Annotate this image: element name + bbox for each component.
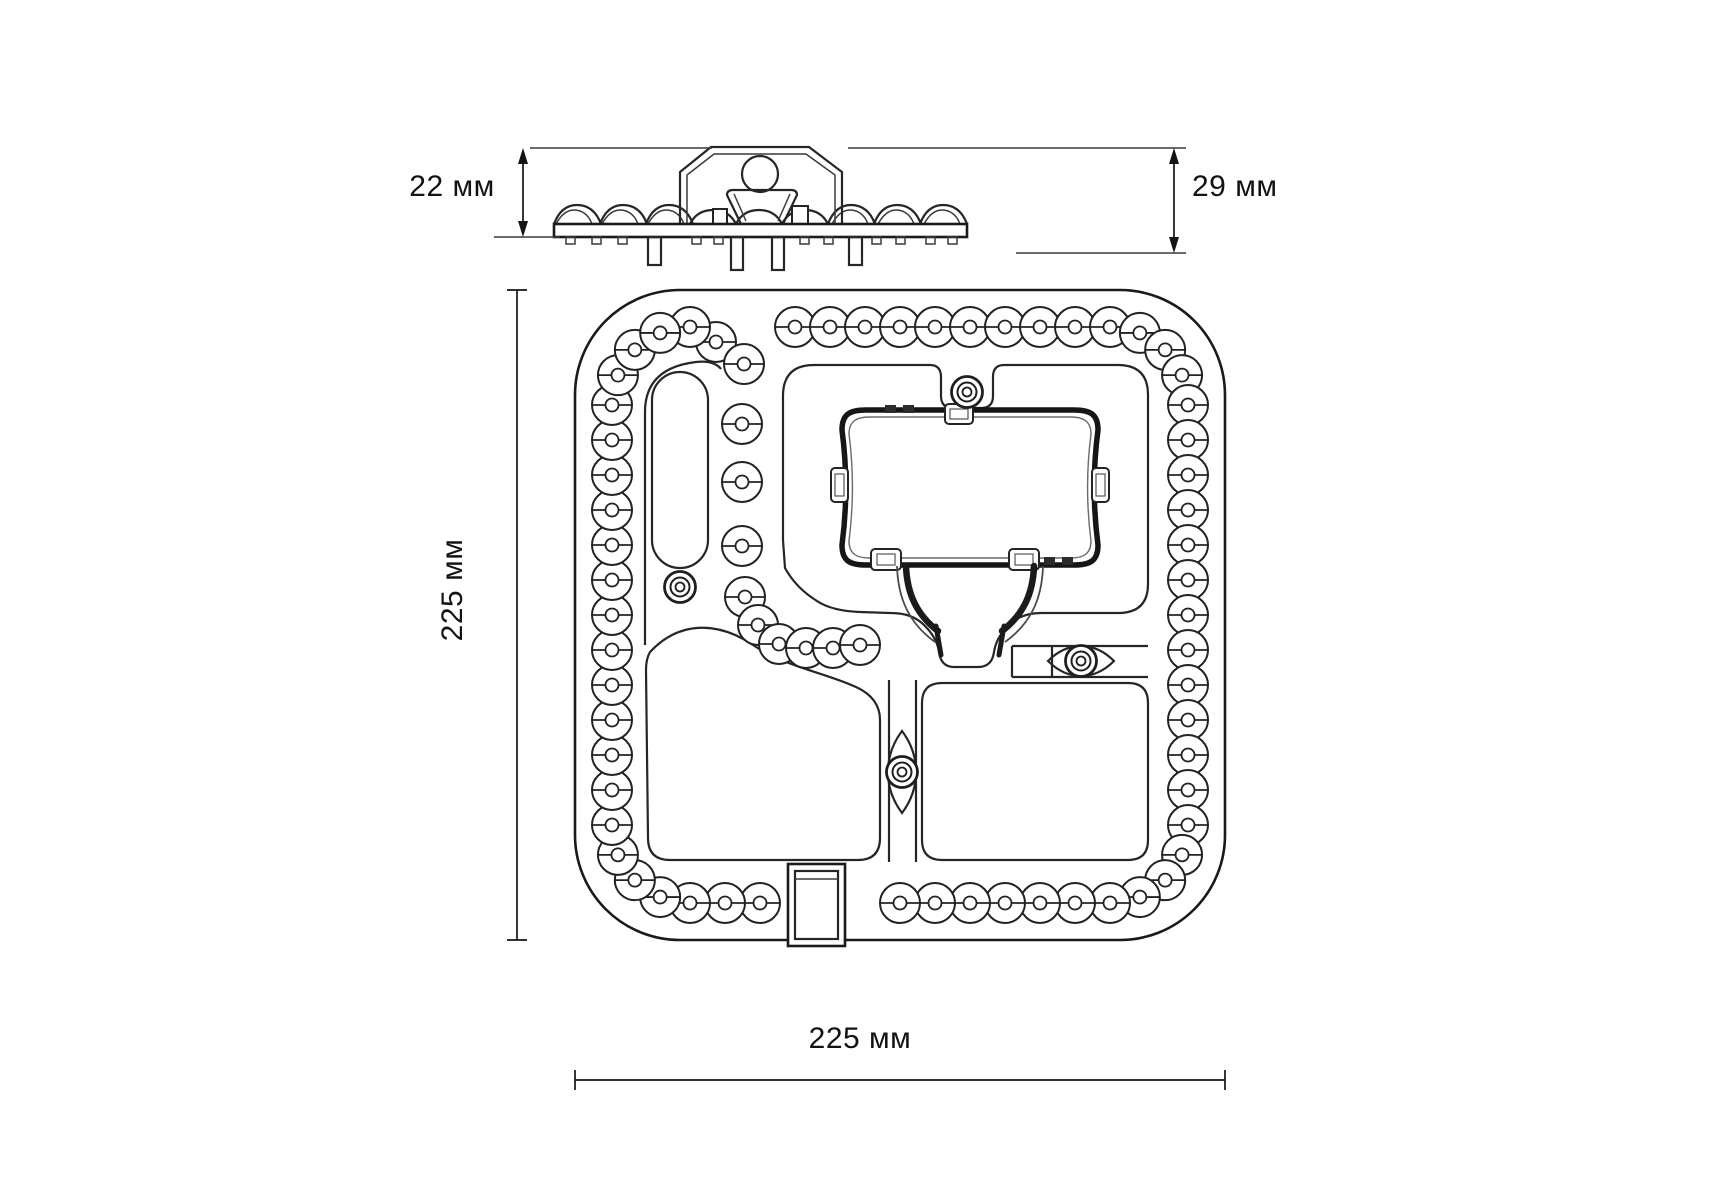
sensor-dome <box>742 156 778 192</box>
module-outline <box>575 290 1225 940</box>
side-pcb-board <box>554 224 967 237</box>
dimension-height-225mm: 225 мм <box>436 290 527 940</box>
screw-post <box>952 377 983 408</box>
label-side-height-left: 22 мм <box>409 170 494 203</box>
bracket-tab-right <box>1092 468 1109 502</box>
dimension-width-225mm: 225 мм <box>575 1022 1225 1090</box>
side-lens-domes <box>554 205 967 224</box>
label-side-height-right: 29 мм <box>1192 170 1277 203</box>
label-plan-width: 225 мм <box>809 1022 912 1055</box>
label-plan-height: 225 мм <box>436 539 469 642</box>
side-view: 22 мм 29 мм <box>409 147 1277 270</box>
led-lens <box>640 313 680 353</box>
plan-view: 225 мм 225 мм <box>436 290 1225 1090</box>
mounting-pins <box>648 237 862 270</box>
v-bracket <box>727 190 797 224</box>
screw-post <box>1066 646 1097 677</box>
connector-socket <box>788 864 845 946</box>
screw-post <box>887 757 918 788</box>
led-lens <box>840 625 880 665</box>
led-lens <box>722 462 762 502</box>
bracket-tab-left <box>831 468 848 502</box>
led-lens <box>880 883 920 923</box>
led-module-drawing: 22 мм 29 мм <box>0 0 1715 1200</box>
technical-drawing-page: 22 мм 29 мм <box>0 0 1715 1200</box>
led-lens <box>724 344 764 384</box>
led-lens <box>722 526 762 566</box>
led-lens <box>722 404 762 444</box>
screw-post <box>665 572 696 603</box>
